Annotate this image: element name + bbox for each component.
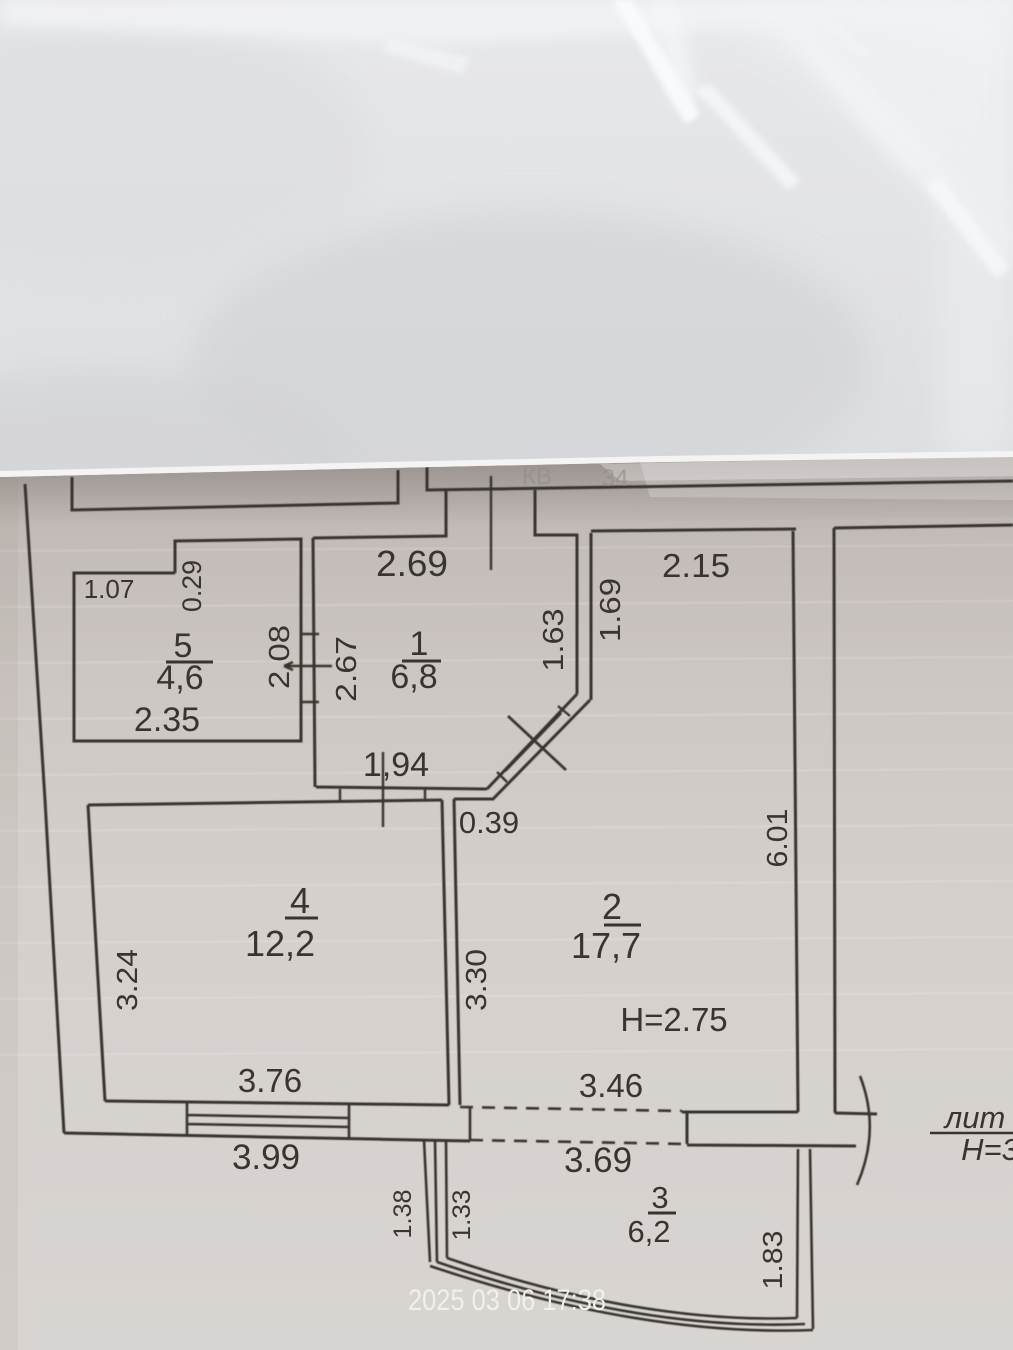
svg-text:0.39: 0.39 xyxy=(459,805,519,840)
svg-text:1.33: 1.33 xyxy=(448,1190,476,1241)
svg-text:3: 3 xyxy=(651,1180,668,1215)
svg-text:2.67: 2.67 xyxy=(331,636,363,702)
svg-text:2.35: 2.35 xyxy=(134,701,200,739)
svg-text:1.07: 1.07 xyxy=(84,574,135,604)
svg-text:6,2: 6,2 xyxy=(627,1214,670,1249)
svg-text:2: 2 xyxy=(602,886,622,927)
svg-text:3.46: 3.46 xyxy=(579,1067,643,1104)
svg-text:12,2: 12,2 xyxy=(245,923,315,964)
svg-text:3.99: 3.99 xyxy=(232,1138,300,1177)
svg-text:17,7: 17,7 xyxy=(571,925,641,966)
svg-text:3.69: 3.69 xyxy=(564,1141,632,1180)
svg-text:3.76: 3.76 xyxy=(238,1062,302,1099)
svg-text:4,6: 4,6 xyxy=(156,659,203,697)
svg-text:1,94: 1,94 xyxy=(363,746,429,784)
svg-text:3.24: 3.24 xyxy=(112,949,144,1011)
svg-text:Н=2.75: Н=2.75 xyxy=(620,1001,727,1038)
svg-text:0.29: 0.29 xyxy=(177,560,207,612)
svg-text:2025 03 06 17:38: 2025 03 06 17:38 xyxy=(408,1284,606,1317)
svg-text:2.08: 2.08 xyxy=(264,625,296,689)
svg-text:2.69: 2.69 xyxy=(376,543,448,584)
svg-text:1.63: 1.63 xyxy=(538,609,570,672)
svg-text:6,8: 6,8 xyxy=(390,658,437,696)
svg-text:1.83: 1.83 xyxy=(757,1231,788,1290)
svg-text:3.30: 3.30 xyxy=(461,949,493,1011)
svg-text:КВ: КВ xyxy=(522,463,552,490)
svg-text:6.01: 6.01 xyxy=(762,809,794,868)
svg-text:34: 34 xyxy=(602,465,629,492)
svg-text:Н=3: Н=3 xyxy=(961,1132,1013,1167)
svg-text:лит: лит xyxy=(943,1100,1006,1135)
svg-text:2.15: 2.15 xyxy=(662,547,730,584)
svg-text:4: 4 xyxy=(290,880,310,921)
svg-text:1.38: 1.38 xyxy=(389,1190,417,1239)
svg-text:1.69: 1.69 xyxy=(595,578,627,642)
